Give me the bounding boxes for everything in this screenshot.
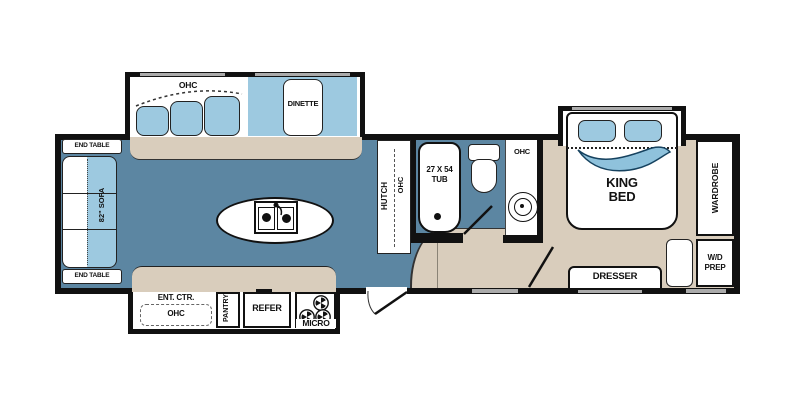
vanity-sink <box>508 192 538 222</box>
vanity-sink-drain <box>520 204 524 208</box>
entry-door-leaf <box>375 292 407 314</box>
sink-bowl-left <box>258 207 275 230</box>
vanity-bottom-wall <box>503 235 543 243</box>
ent-ohc-label: OHC <box>140 310 212 318</box>
sofa-cushion <box>204 96 240 136</box>
sink-bowl-right <box>277 207 294 230</box>
wall-left <box>55 134 61 294</box>
refer-vent <box>256 289 272 292</box>
vanity-right-wall <box>537 140 543 243</box>
dinette-label: DINETTE <box>272 100 334 108</box>
sink-drain <box>262 213 271 222</box>
end-table-bottom-label: END TABLE <box>62 273 122 280</box>
floorplan-canvas: OHC DINETTE KING BED WARDROBE W/D PREP D… <box>0 0 800 400</box>
king-bed-label-line1: KING <box>582 176 662 190</box>
wd-prep-label-line1: W/D <box>697 253 733 263</box>
slide-strip-top <box>130 137 362 160</box>
ohc-label: OHC <box>148 81 228 90</box>
island-sink <box>254 201 298 234</box>
wall-right <box>734 134 740 294</box>
bed-pillow <box>624 120 662 142</box>
sofa-cushion-divider <box>63 229 116 230</box>
sofa-cushion <box>170 101 203 136</box>
hutch-label: HUTCH <box>380 162 389 230</box>
king-bed-label-line2: BED <box>582 190 662 204</box>
tub-label-word: TUB <box>418 175 461 185</box>
bath-wall <box>411 140 416 243</box>
sofa-cushion <box>136 106 169 136</box>
wardrobe-label: WARDROBE <box>710 150 720 226</box>
king-bed-label: KING BED <box>582 176 662 204</box>
pantry-label: PANTRY <box>223 291 230 325</box>
sofa-cushion-divider <box>63 193 116 194</box>
ent-ctr-label: ENT. CTR. <box>140 294 212 302</box>
sink-drain <box>282 214 291 223</box>
window <box>686 289 726 293</box>
slideout-window <box>255 73 350 76</box>
window <box>472 289 518 293</box>
wd-prep-label-line2: PREP <box>697 263 733 273</box>
tub-label: 27 X 54 TUB <box>418 165 461 184</box>
bed-pillow <box>578 120 616 142</box>
hutch-ohc-label: OHC <box>396 162 405 208</box>
tub-bottom-wall <box>413 233 463 243</box>
nightstand <box>666 239 693 287</box>
slideout-window <box>140 73 225 76</box>
slideout-window <box>572 107 672 110</box>
sofa-seat-line <box>87 159 88 265</box>
sofa <box>62 156 117 268</box>
refer-label: REFER <box>243 304 291 313</box>
tub-drain <box>434 213 441 220</box>
slide-strip-bottom <box>132 266 336 292</box>
vanity-sink-inner <box>514 198 532 216</box>
dresser-label: DRESSER <box>568 272 662 282</box>
bed-slide-line <box>567 147 677 149</box>
micro-label: MICRO <box>296 319 336 328</box>
vanity-ohc-label: OHC <box>505 148 539 156</box>
entry-door-gap <box>366 287 407 295</box>
tub-label-size: 27 X 54 <box>418 165 461 175</box>
wd-prep-label: W/D PREP <box>697 253 733 272</box>
sofa-label: 82" SOFA <box>97 160 106 250</box>
toilet-bowl <box>471 159 497 193</box>
end-table-top-label: END TABLE <box>62 143 122 150</box>
hutch-divider <box>394 149 395 247</box>
